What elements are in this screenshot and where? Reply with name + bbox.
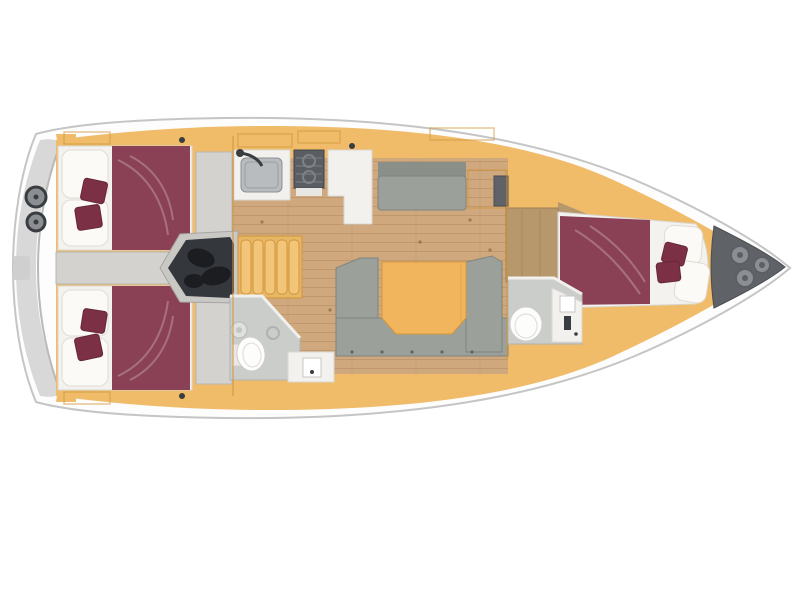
step — [265, 240, 275, 294]
yacht-floor-plan: yacht hull and side deck stern swim plat… — [0, 0, 800, 600]
wardrobe — [506, 208, 558, 282]
hatch-dot — [349, 143, 355, 149]
decor-cushion — [80, 178, 108, 205]
decor-cushion — [74, 334, 103, 362]
berth-mattress — [112, 146, 190, 250]
speaker-icon — [179, 137, 185, 143]
step — [241, 240, 251, 294]
decor-cushion — [656, 261, 681, 284]
vanity-handle — [564, 316, 571, 330]
step — [253, 240, 263, 294]
vanity-basin — [303, 358, 321, 377]
hatch-dot — [742, 275, 748, 281]
faucet-base — [236, 149, 244, 157]
step — [277, 240, 287, 294]
hatch-dot — [737, 252, 743, 258]
salon: salon with U-shaped settee and folding t… — [336, 256, 508, 356]
settee-seat — [378, 176, 466, 210]
hatch-dot — [759, 262, 765, 268]
fwd-head: forward bathroom with toilet and vanity — [508, 278, 582, 344]
oven-front — [296, 188, 322, 196]
berth-mattress — [112, 286, 190, 390]
salon-table — [382, 262, 466, 334]
settee-right-arm — [466, 256, 502, 352]
floor-plan-svg: yacht hull and side deck stern swim plat… — [0, 0, 800, 600]
decor-cushion — [80, 308, 107, 333]
vanity-dot — [574, 332, 578, 336]
decor-cushion — [74, 204, 102, 231]
engine-detail — [184, 274, 204, 288]
swim-ladder — [13, 256, 30, 280]
vanity-basin — [560, 296, 575, 312]
vanity-drain-dot — [310, 370, 314, 374]
locker-door — [494, 176, 508, 206]
speaker-icon — [179, 393, 185, 399]
stern-hatch-dot — [34, 195, 39, 200]
step — [289, 240, 299, 294]
corner-sink-basin — [236, 327, 242, 333]
stern-hatch-dot — [34, 220, 39, 225]
companionway-steps: companionway steps — [238, 236, 302, 298]
